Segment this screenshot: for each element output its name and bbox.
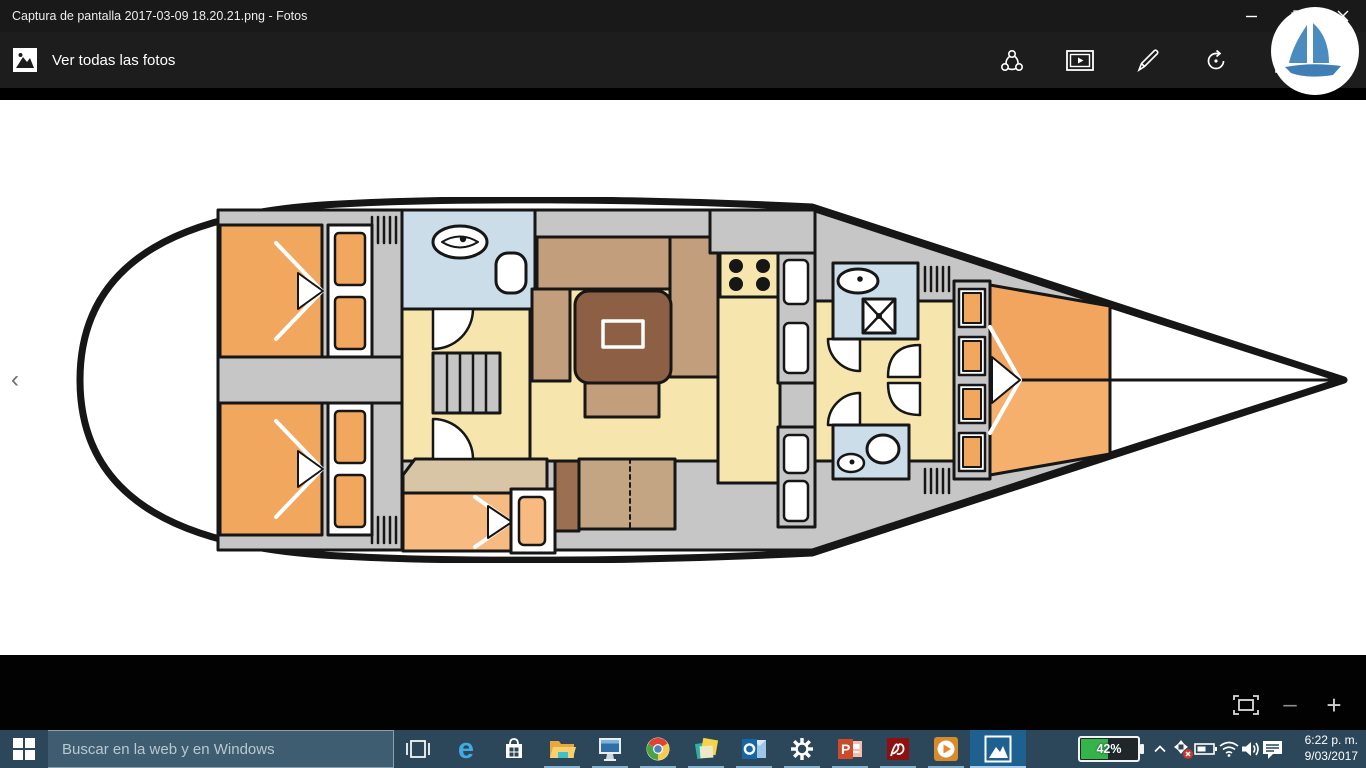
sailboat-logo (1271, 7, 1359, 95)
taskbar-photos-active[interactable] (970, 730, 1026, 768)
tray-date: 9/03/2017 (1286, 749, 1358, 765)
battery-icon (1194, 740, 1217, 758)
photos-app-bar: Ver todas las fotos (0, 32, 1366, 88)
desktop-screen: Captura de pantalla 2017-03-09 18.20.21.… (0, 0, 1366, 768)
taskbar-powerpoint[interactable]: P (826, 730, 874, 768)
photos-taskbar-icon (984, 735, 1012, 763)
fit-to-window-icon (1233, 695, 1259, 715)
task-view-icon (405, 738, 431, 760)
edge-icon: e (458, 735, 474, 764)
edit-pencil-icon (1135, 48, 1161, 74)
volume-icon (1240, 740, 1262, 758)
zoom-in-button[interactable]: + (1316, 687, 1352, 723)
galley-floor (718, 293, 780, 483)
pc-monitor-icon (596, 736, 624, 762)
minimize-button[interactable] (1228, 0, 1274, 32)
header-divider (0, 88, 1366, 100)
taskbar-file-explorer[interactable] (538, 730, 586, 768)
settings-gear-icon (789, 736, 815, 762)
windows-logo-icon (13, 738, 35, 760)
acrobat-reader-icon (886, 737, 910, 761)
companionway-stairs (433, 353, 500, 413)
forward-head-port (833, 263, 918, 339)
action-center-icon (1261, 738, 1284, 760)
slideshow-icon (1066, 50, 1094, 72)
tray-action-center-button[interactable] (1261, 730, 1284, 768)
tray-expand-button[interactable] (1148, 730, 1171, 768)
sticky-notes-icon (693, 736, 720, 762)
forward-wardrobe (778, 427, 815, 527)
taskbar-store[interactable] (490, 730, 538, 768)
forward-head-starboard (833, 425, 909, 479)
taskbar-media-player[interactable] (922, 730, 970, 768)
share-button[interactable] (990, 39, 1034, 83)
aft-cabin-port (220, 225, 372, 357)
file-explorer-icon (548, 737, 576, 761)
taskbar-chrome[interactable] (634, 730, 682, 768)
taskbar-edge[interactable]: e (442, 730, 490, 768)
wifi-icon (1218, 740, 1240, 758)
sync-error-icon (1172, 738, 1194, 760)
start-button[interactable] (0, 730, 48, 768)
share-icon (999, 48, 1025, 74)
aft-head (402, 210, 535, 309)
tray-time: 6:22 p. m. (1286, 733, 1358, 749)
svg-text:P: P (841, 741, 850, 757)
battery-widget[interactable]: 42% (1078, 736, 1140, 762)
taskbar-settings[interactable] (778, 730, 826, 768)
view-all-photos-label: Ver todas las fotos (52, 52, 175, 69)
boat-floorplan-svg (70, 197, 1350, 563)
task-view-button[interactable] (394, 730, 442, 768)
boat-floorplan-image (70, 197, 1350, 563)
zoom-out-button[interactable]: – (1272, 687, 1308, 723)
slideshow-button[interactable] (1058, 39, 1102, 83)
store-icon (501, 736, 527, 762)
aft-cabin-starboard (220, 403, 372, 535)
tray-clock[interactable]: 6:22 p. m. 9/03/2017 (1286, 730, 1362, 768)
powerpoint-icon: P (837, 737, 863, 761)
taskbar-pc-monitor[interactable] (586, 730, 634, 768)
outlook-icon (741, 737, 768, 761)
minimize-icon (1246, 11, 1257, 22)
search-input[interactable] (48, 731, 393, 767)
taskbar: e (0, 730, 1366, 768)
window-title: Captura de pantalla 2017-03-09 18.20.21.… (12, 0, 307, 32)
tray-battery-button[interactable] (1194, 730, 1217, 768)
taskbar-search[interactable] (48, 730, 394, 768)
tray-sync-button[interactable] (1171, 730, 1194, 768)
tray-volume-button[interactable] (1239, 730, 1262, 768)
taskbar-sticky-notes[interactable] (682, 730, 730, 768)
taskbar-acrobat[interactable] (874, 730, 922, 768)
battery-widget-percent: 42% (1080, 738, 1138, 760)
view-all-photos-button[interactable]: Ver todas las fotos (12, 32, 175, 88)
rotate-button[interactable] (1194, 39, 1238, 83)
photos-app-icon (12, 47, 38, 73)
taskbar-outlook[interactable] (730, 730, 778, 768)
fit-to-window-button[interactable] (1228, 687, 1264, 723)
previous-photo-button[interactable]: ‹ (2, 364, 28, 396)
battery-widget-tip (1140, 744, 1144, 754)
chrome-icon (645, 736, 671, 762)
rotate-icon (1203, 48, 1229, 74)
viewer-bottom-bar: – + (0, 655, 1366, 730)
edit-button[interactable] (1126, 39, 1170, 83)
sailboat-icon (1283, 21, 1347, 81)
v-berth (954, 281, 1110, 479)
titlebar: Captura de pantalla 2017-03-09 18.20.21.… (0, 0, 1366, 32)
media-player-icon (933, 736, 959, 762)
tray-wifi-button[interactable] (1217, 730, 1240, 768)
chevron-up-icon (1153, 742, 1167, 756)
photo-viewer: ‹ (0, 100, 1366, 655)
